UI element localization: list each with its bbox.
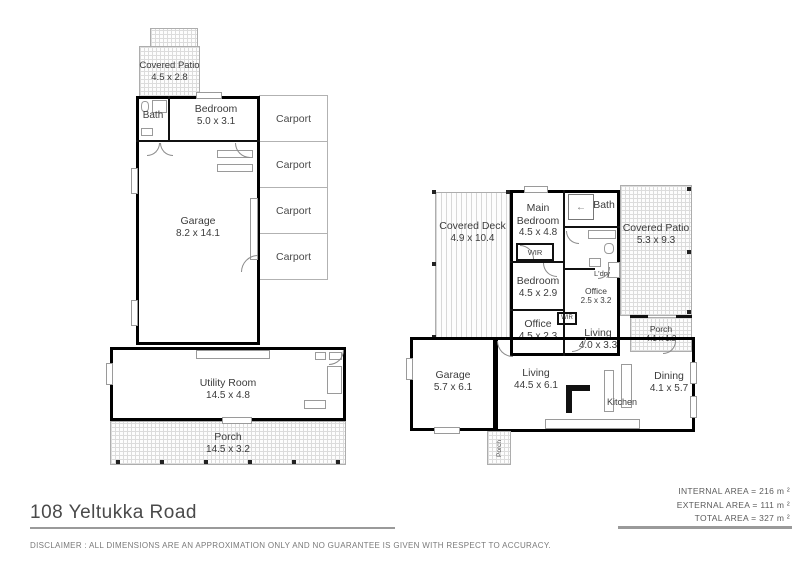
patio-post: [687, 310, 691, 314]
room-dims: 8.2 x 14.1: [176, 228, 220, 241]
room-label: Porch: [650, 324, 672, 334]
room-label: Bath: [593, 199, 615, 212]
room-label: Living: [522, 367, 549, 380]
carport-block: Carport Carport Carport Carport: [259, 96, 328, 280]
room-label: Office: [524, 318, 551, 331]
room-label: Kitchen: [607, 397, 637, 408]
kitchen-bench: [545, 419, 640, 429]
window-marker: [690, 362, 697, 384]
basin-fixture: [141, 128, 153, 136]
room-garage-left: Garage 8.2 x 14.1: [138, 212, 258, 244]
porch-post: [204, 460, 208, 464]
room-dims: 14.5 x 3.2: [206, 444, 250, 457]
room-dims: 4.1 x 5.7: [650, 383, 688, 396]
area-underline: [618, 526, 792, 529]
porch-area-small: Porch: [487, 431, 511, 465]
title-underline: [30, 527, 395, 529]
sliding-door-marker: [222, 417, 252, 424]
room-garage-right: Garage 5.7 x 6.1: [412, 366, 494, 398]
room-label: Covered Patio: [139, 60, 199, 71]
room-bedroom-left: Bedroom 5.0 x 3.1: [174, 100, 258, 132]
porch-post: [292, 460, 296, 464]
carport-4: Carport: [259, 233, 328, 280]
shelf-fixture: [217, 164, 253, 172]
window-marker: [106, 363, 113, 385]
window-marker: [131, 168, 138, 194]
room-label: Office: [585, 286, 607, 296]
porch-post: [248, 460, 252, 464]
room-dining: Dining 4.1 x 5.7: [646, 368, 692, 398]
window-marker: [524, 186, 548, 193]
room-label: Utility Room: [200, 377, 257, 390]
room-kitchen: Kitchen: [596, 396, 648, 408]
room-covered-patio-right: Covered Patio 5.3 x 9.3: [622, 212, 690, 258]
room-label: Bath: [143, 110, 164, 122]
room-dims: 5.0 x 3.1: [197, 116, 235, 129]
room-main-bedroom: Main Bedroom 4.5 x 4.8: [512, 198, 564, 244]
room-label: Garage: [435, 369, 470, 382]
room-label: Main Bedroom: [512, 202, 564, 227]
room-dims: 4.5 x 4.8: [519, 227, 557, 240]
window-marker: [690, 396, 697, 418]
patio-post: [687, 250, 691, 254]
room-living-big: Living 44.5 x 6.1: [500, 364, 572, 396]
carport-3: Carport: [259, 187, 328, 234]
room-dims: 44.5 x 6.1: [514, 380, 558, 393]
window-marker: [131, 300, 138, 326]
window-marker: [434, 427, 460, 434]
room-dims: 4.5 x 2.9: [519, 288, 557, 301]
room-label: Dining: [654, 370, 684, 383]
room-label: Garage: [180, 215, 215, 228]
room-label: WIR: [561, 315, 573, 322]
room-label: Covered Deck: [439, 220, 506, 233]
page-title: 108 Yeltukka Road: [30, 502, 197, 524]
shower-arrow-icon: ←: [576, 202, 586, 213]
external-area-text: EXTERNAL AREA = 111 m ²: [560, 500, 790, 510]
room-bath-right: Bath: [588, 198, 620, 212]
window-marker: [406, 358, 413, 380]
room-label: Bedroom: [195, 103, 238, 116]
window-marker: [196, 92, 222, 99]
porch-post: [336, 460, 340, 464]
room-dims: 14.5 x 4.8: [206, 390, 250, 403]
disclaimer-text: DISCLAIMER : ALL DIMENSIONS ARE AN APPRO…: [30, 541, 551, 550]
internal-area-text: INTERNAL AREA = 216 m ²: [560, 486, 790, 496]
room-dims: 4.5 x 2.8: [151, 72, 187, 84]
room-dims: 5.3 x 9.3: [637, 235, 675, 248]
deck-post: [432, 262, 436, 266]
room-office-small: Office 2.5 x 3.2: [574, 284, 618, 308]
porch-post: [116, 460, 120, 464]
wall: [566, 385, 590, 391]
room-covered-deck: Covered Deck 4.9 x 10.4: [436, 210, 509, 256]
porch-post: [160, 460, 164, 464]
room-dims: 4.9 x 10.4: [451, 233, 495, 246]
room-wir-2: WIR: [557, 314, 577, 323]
total-area-text: TOTAL AREA = 327 m ²: [560, 513, 790, 523]
wall: [565, 226, 620, 228]
patio-post: [687, 187, 691, 191]
room-dims: 2.5 x 3.2: [581, 296, 612, 306]
deck-post: [432, 190, 436, 194]
toilet-fixture: [604, 243, 614, 254]
carport-1: Carport: [259, 95, 328, 142]
vanity-fixture: [588, 230, 616, 239]
room-label: Porch: [214, 431, 241, 444]
room-dims: 5.7 x 6.1: [434, 382, 472, 395]
room-utility: Utility Room 14.5 x 4.8: [112, 374, 344, 406]
covered-patio-step-area: [150, 28, 198, 48]
step-fixture: [196, 350, 270, 359]
wall: [630, 315, 648, 318]
wall: [676, 315, 692, 318]
room-porch-left: Porch 14.5 x 3.2: [112, 430, 344, 458]
wall: [136, 140, 260, 142]
room-label: Covered Patio: [623, 222, 690, 235]
room-label: Bedroom: [517, 275, 560, 288]
room-covered-patio-left: Covered Patio 4.5 x 2.8: [139, 50, 200, 94]
sink-fixture: [315, 352, 326, 360]
carport-2: Carport: [259, 141, 328, 188]
room-porch-small-label: Porch: [496, 440, 503, 457]
wall: [510, 309, 563, 311]
floorplan-page: Covered Patio 4.5 x 2.8 Carport Carport …: [0, 0, 800, 566]
room-bath-left: Bath: [137, 109, 169, 123]
laundry-appliance: [589, 258, 601, 267]
